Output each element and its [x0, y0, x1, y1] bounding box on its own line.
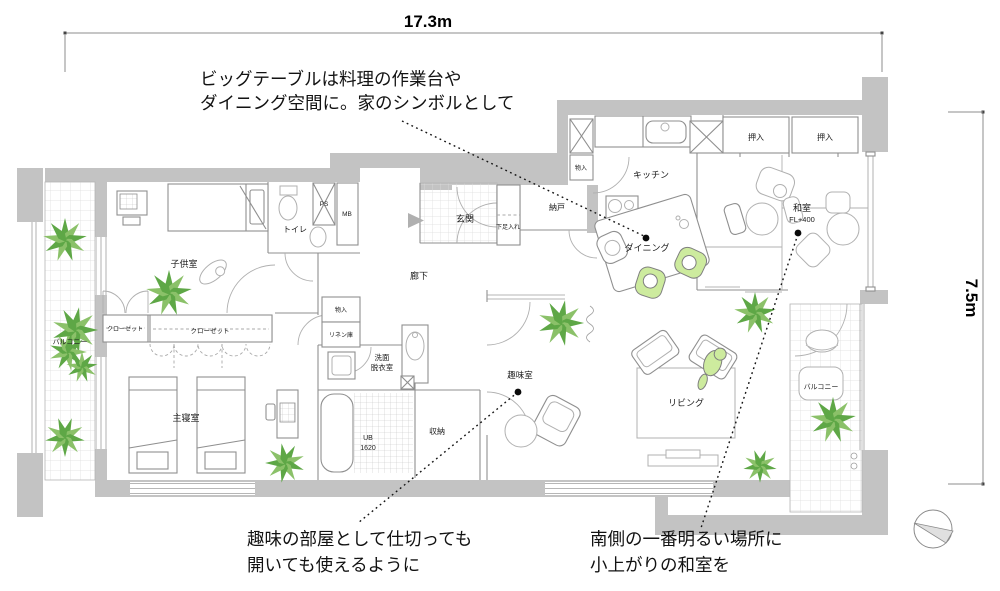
plant-icon	[734, 292, 777, 334]
faucet-icon	[661, 123, 669, 131]
kids-chair	[196, 256, 231, 289]
tv-board	[648, 450, 718, 466]
plant-icon	[145, 270, 192, 316]
label-storage-small-2: 物入	[575, 164, 587, 172]
label-shoe-closet: 下足入れ	[496, 224, 520, 231]
label-ub-1: UB	[363, 435, 373, 442]
label-storeroom: 納戸	[549, 202, 565, 212]
window-bedroom-south	[130, 482, 255, 495]
label-mb: MB	[342, 211, 352, 218]
floor-plan-drawing: バルコニー 子供室 クローゼット クローゼット 主寝室 トイレ PS MB 玄関…	[0, 0, 1000, 591]
label-closet-1: クローゼット	[107, 325, 143, 333]
label-closet-2: クローゼット	[191, 326, 230, 335]
annotation-tatami-line1: 南側の一番明るい場所に	[590, 529, 783, 549]
label-tatami-fl: FL+400	[789, 215, 815, 224]
master-bed-2	[197, 377, 245, 473]
label-storage-main: 収納	[429, 426, 445, 436]
annotation-big-table-line2: ダイニング空間に。家のシンボルとして	[200, 93, 514, 113]
label-balcony-right: バルコニー	[804, 383, 839, 391]
kitchen-counter	[595, 116, 691, 147]
label-dining: ダイニング	[624, 242, 669, 253]
hand-basin	[310, 227, 326, 247]
compass-icon	[914, 510, 953, 548]
hobby-chair	[530, 393, 583, 448]
label-entrance: 玄関	[456, 213, 474, 224]
label-oshiire-2: 押入	[817, 132, 833, 142]
label-kitchen: キッチン	[633, 170, 669, 180]
label-ps: PS	[320, 201, 329, 208]
label-master-bedroom: 主寝室	[172, 412, 199, 423]
label-washroom-2: 脱衣室	[371, 362, 394, 372]
window-master	[95, 357, 107, 449]
kids-desk	[117, 191, 147, 225]
label-hobby: 趣味室	[507, 370, 533, 380]
anchor-dot-dining	[643, 235, 650, 242]
wash-basin	[402, 325, 428, 383]
floor-plan-page: バルコニー 子供室 クローゼット クローゼット 主寝室 トイレ PS MB 玄関…	[0, 0, 1000, 591]
label-kids-room: 子供室	[170, 258, 197, 269]
balcony-chair	[806, 330, 838, 352]
master-bed-1	[129, 377, 177, 473]
label-toilet: トイレ	[283, 225, 307, 234]
label-storage-small-1: 物入	[335, 306, 347, 314]
label-tatami: 和室	[793, 202, 811, 213]
dining-chair	[723, 202, 747, 235]
curtain-icon	[587, 306, 594, 342]
master-desk	[266, 390, 298, 438]
anchor-dot-hobby	[515, 389, 522, 396]
closet-large	[150, 315, 272, 368]
label-balcony-left: バルコニー	[53, 338, 88, 346]
label-linen: リネン庫	[329, 331, 353, 339]
washing-machine	[328, 352, 355, 379]
label-oshiire-1: 押入	[748, 132, 764, 142]
window-kids	[95, 237, 107, 295]
shaft-left	[570, 119, 593, 153]
annotation-hobby-line2: 開いても使えるように	[247, 555, 420, 575]
annotation-hobby-line1: 趣味の部屋として仕切っても	[247, 529, 472, 549]
dimension-width-label: 17.3m	[404, 12, 452, 31]
label-washroom-1: 洗面	[375, 352, 390, 362]
bathtub	[321, 394, 353, 472]
label-corridor: 廊下	[410, 270, 428, 281]
dimension-height-label: 7.5m	[962, 279, 981, 318]
annotation-big-table-line1: ビッグテーブルは料理の作業台や	[200, 69, 461, 89]
shaft-right	[690, 121, 723, 153]
hobby-table	[505, 415, 537, 447]
entrance-floor	[420, 183, 497, 243]
anchor-dot-tatami	[795, 230, 802, 237]
window-tatami-east	[866, 152, 875, 291]
label-living: リビング	[668, 397, 704, 408]
window-living-south	[545, 482, 713, 495]
kids-bed	[168, 184, 268, 231]
plant-icon	[534, 296, 588, 350]
label-ub-2: 1620	[360, 445, 376, 452]
annotation-tatami-line2: 小上がりの和室を	[590, 555, 730, 575]
